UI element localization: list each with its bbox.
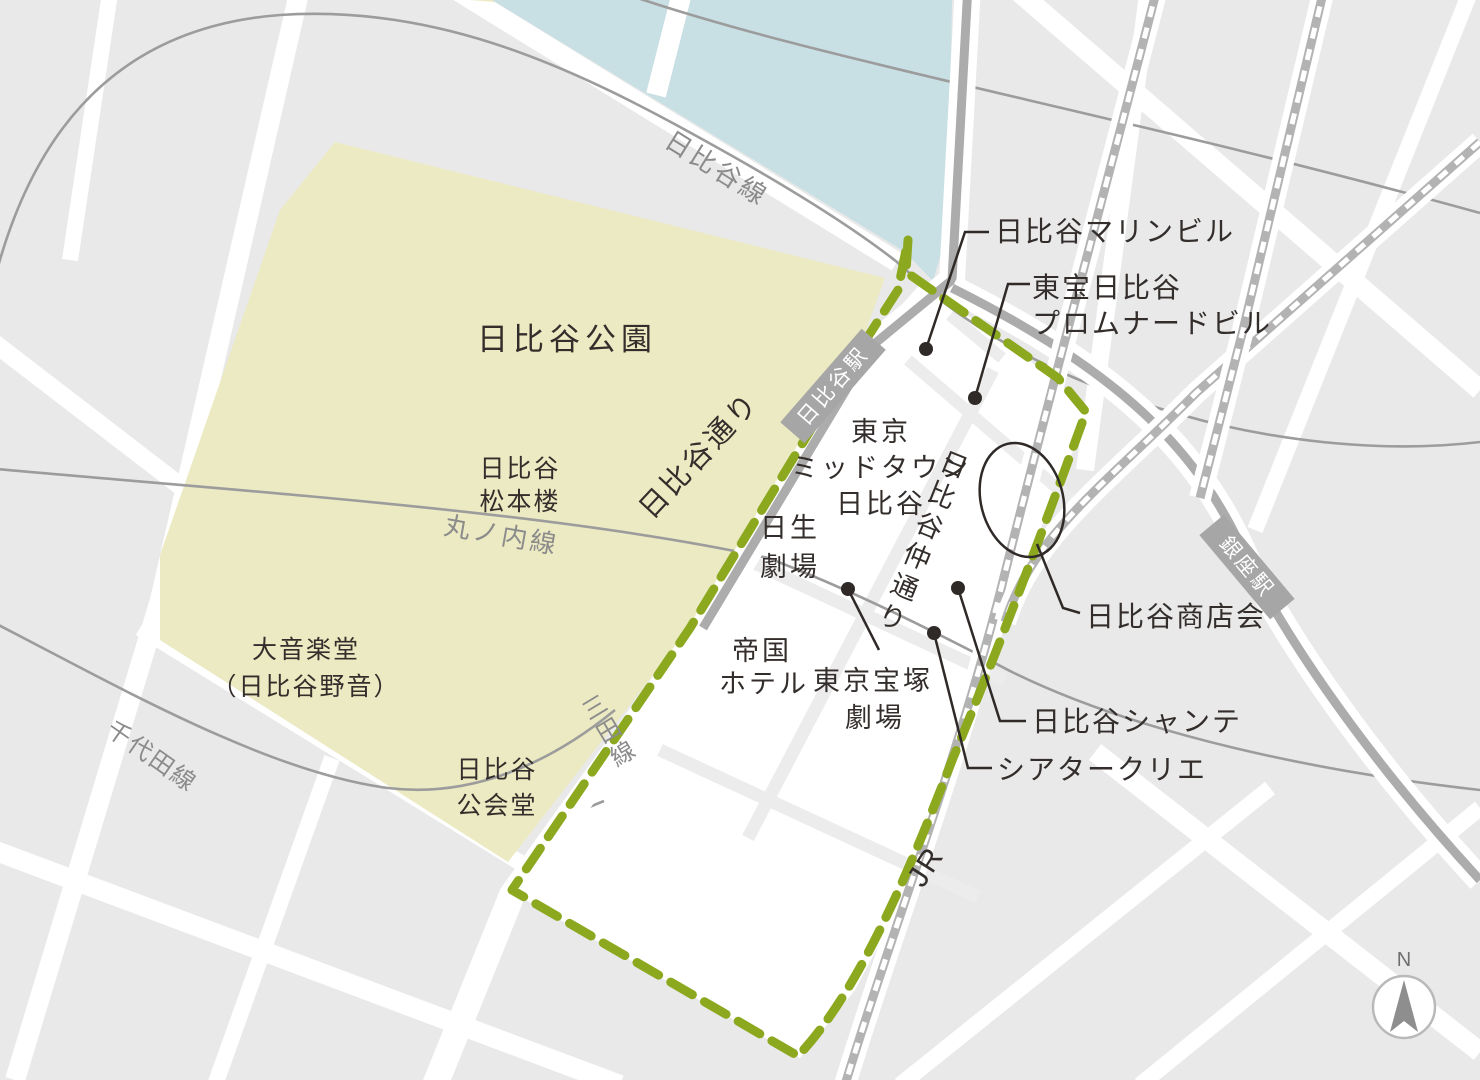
chanter-label: 日比谷シャンテ	[1032, 706, 1242, 737]
shotenkai-label: 日比谷商店会	[1086, 601, 1266, 632]
hibiya-area-map: 日比谷駅 銀座駅 日比谷公園 日比谷松本楼 大音楽堂（日比谷野音） 日比谷公会堂…	[0, 0, 1480, 1080]
north-label: N	[1397, 949, 1411, 971]
marine-building-label: 日比谷マリンビル	[995, 216, 1235, 247]
theatre-creation-label: シアタークリエ	[997, 754, 1207, 785]
map-canvas: 日比谷駅 銀座駅 日比谷公園 日比谷松本楼 大音楽堂（日比谷野音） 日比谷公会堂…	[0, 0, 1480, 1080]
park-title: 日比谷公園	[477, 322, 657, 357]
